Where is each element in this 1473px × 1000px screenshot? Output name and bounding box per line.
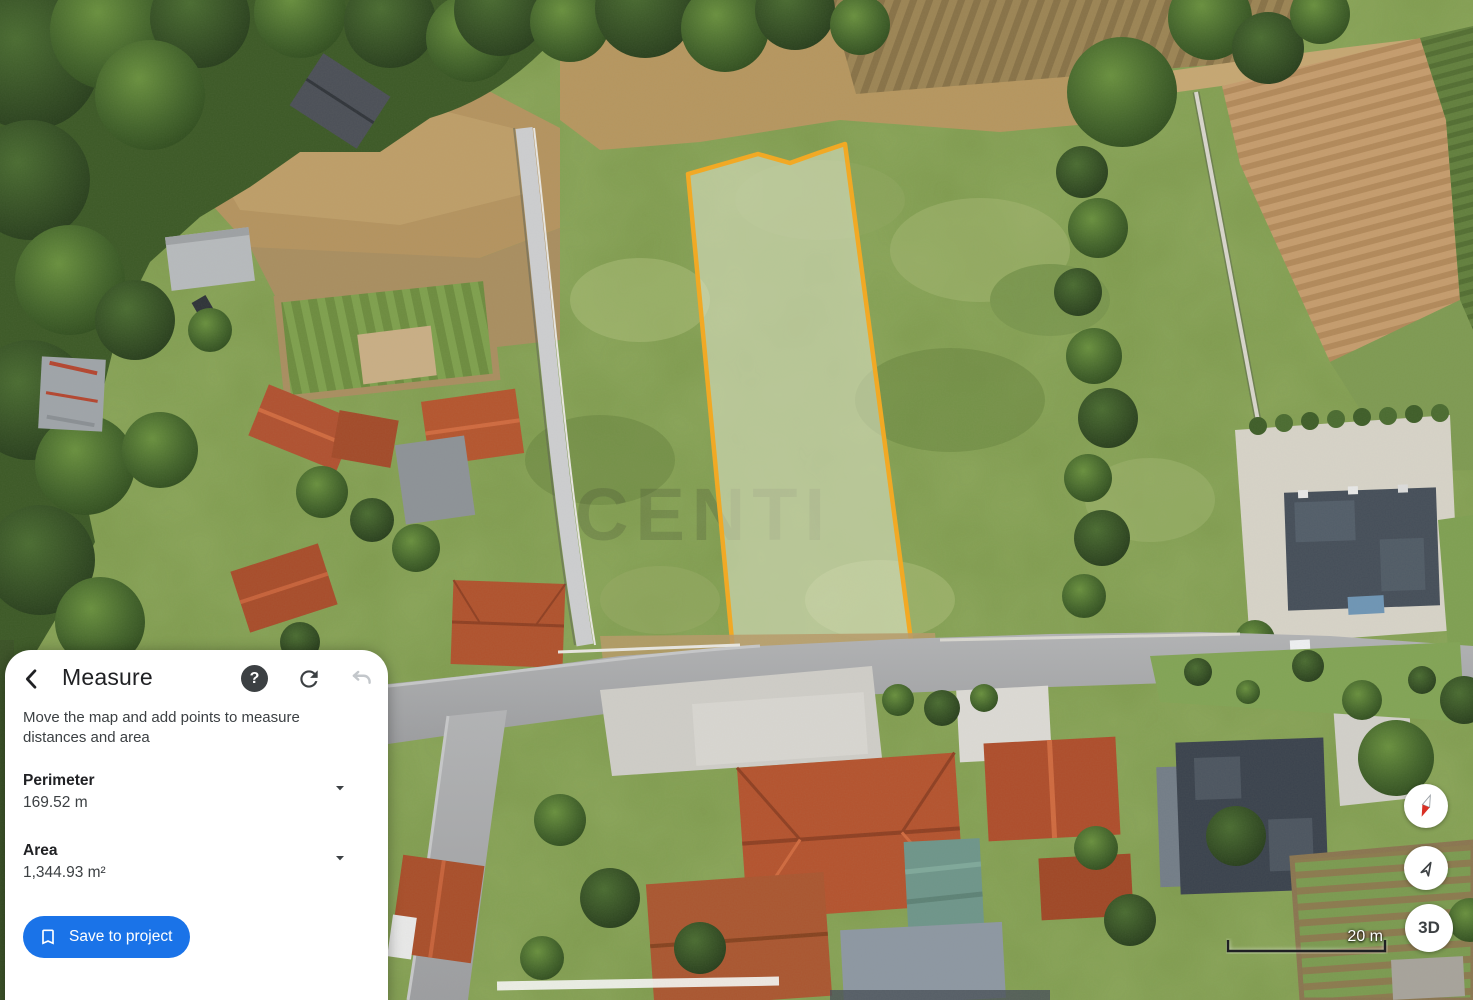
help-button[interactable]: ? <box>241 665 268 692</box>
area-label: Area <box>23 842 57 860</box>
compass-needle-icon <box>1409 789 1443 823</box>
save-button-label: Save to project <box>69 928 172 946</box>
undo-icon <box>349 666 375 692</box>
save-to-project-button[interactable]: Save to project <box>23 916 190 958</box>
refresh-icon <box>296 666 322 692</box>
compass-button[interactable] <box>1404 784 1448 828</box>
panel-description: Move the map and add points to measure d… <box>23 708 338 748</box>
undo-button[interactable] <box>348 665 375 692</box>
scale-bar <box>1226 938 1388 954</box>
back-button[interactable] <box>18 665 46 693</box>
perimeter-value: 169.52 m <box>23 794 88 812</box>
restart-measure-button[interactable] <box>295 665 322 692</box>
bookmark-icon <box>38 927 58 947</box>
area-value: 1,344.93 m² <box>23 864 106 882</box>
chevron-left-icon <box>27 671 35 687</box>
my-location-button[interactable] <box>1404 846 1448 890</box>
view-3d-button[interactable]: 3D <box>1405 904 1453 952</box>
panel-title: Measure <box>62 664 153 691</box>
measure-panel: Measure ? Move the map and add points to… <box>5 650 388 1000</box>
perimeter-row[interactable]: Perimeter 169.52 m <box>5 772 388 830</box>
chevron-down-icon[interactable] <box>332 850 348 866</box>
measure-panel-header: Measure ? <box>5 650 388 706</box>
area-row[interactable]: Area 1,344.93 m² <box>5 842 388 900</box>
chevron-down-icon[interactable] <box>332 780 348 796</box>
question-mark-icon: ? <box>250 671 260 687</box>
google-earth-measure-screen: CENTI <box>0 0 1473 1000</box>
perimeter-label: Perimeter <box>23 772 95 790</box>
navigation-arrow-icon <box>1411 853 1441 883</box>
view-3d-label: 3D <box>1418 918 1440 938</box>
